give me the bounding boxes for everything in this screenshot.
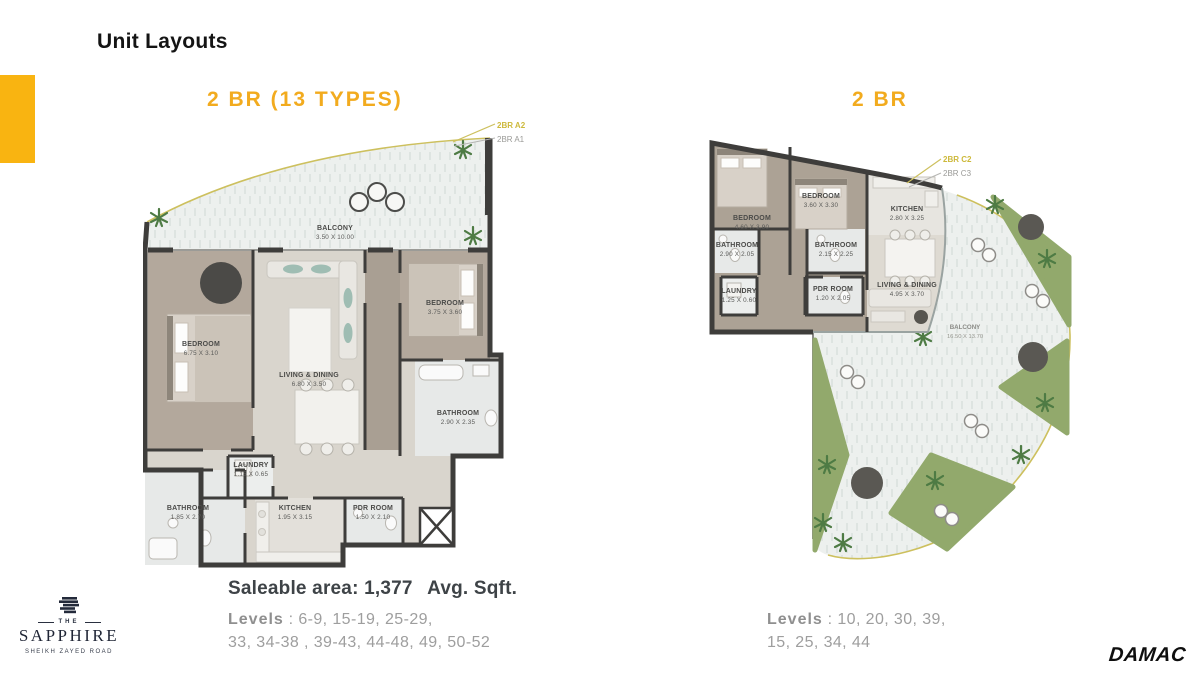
service-shaft bbox=[420, 508, 453, 545]
rule-left bbox=[38, 622, 54, 623]
room-label-pdr: PDR ROOM bbox=[353, 505, 393, 512]
levels-left-line1: : 6-9, 15-19, 25-29, bbox=[289, 611, 433, 628]
room-dims-bathroom2: 2.15 X 2.25 bbox=[819, 251, 854, 258]
room-label-bedroom1: BEDROOM bbox=[182, 341, 220, 348]
rule-right bbox=[85, 622, 101, 623]
room-label-bedroom2: BEDROOM bbox=[802, 193, 840, 200]
room-dims-balcony: 3.50 X 10.00 bbox=[316, 234, 354, 241]
accent-bar bbox=[0, 75, 35, 163]
floor-plan-left: BALCONY 3.50 X 10.00 BEDROOM 6.75 X 3.10… bbox=[143, 118, 538, 568]
room-label-laundry: LAUNDRY bbox=[721, 288, 756, 295]
room-dims-kitchen: 1.95 X 3.15 bbox=[278, 514, 313, 521]
room-dims-bedroom2: 3.75 X 3.60 bbox=[428, 309, 463, 316]
floor-plan-right: BEDROOM 4.60 X 3.90 BEDROOM 3.60 X 3.30 … bbox=[695, 125, 1080, 570]
room-label-balcony: BALCONY bbox=[950, 324, 981, 331]
corridor-floor bbox=[365, 250, 400, 450]
room-dims-bathroom1: 2.90 X 2.35 bbox=[441, 419, 476, 426]
levels-right: Levels : 10, 20, 30, 39, 15, 25, 34, 44 bbox=[767, 608, 1047, 654]
levels-right-line1: : 10, 20, 30, 39, bbox=[828, 611, 946, 628]
sapphire-stack-icon bbox=[16, 597, 122, 615]
room-dims-laundry: 1.15 X 0.65 bbox=[234, 471, 269, 478]
unit-tag-primary: 2BR A2 bbox=[497, 121, 526, 130]
sapphire-logo: THE SAPPHIRE SHEIKH ZAYED ROAD bbox=[16, 597, 122, 655]
room-dims-bedroom1: 4.60 X 3.90 bbox=[735, 224, 770, 231]
saleable-area-line: Saleable area: 1,377 Avg. Sqft. bbox=[228, 578, 517, 600]
right-plan-heading: 2 BR bbox=[852, 88, 908, 112]
levels-left-label: Levels bbox=[228, 611, 284, 628]
unit-tag-primary: 2BR C2 bbox=[943, 155, 972, 164]
left-plan-heading: 2 BR (13 TYPES) bbox=[207, 88, 403, 112]
room-label-bathroom2: BATHROOM bbox=[815, 242, 857, 249]
room-label-bathroom2: BATHROOM bbox=[167, 505, 209, 512]
room-dims-laundry: 1.25 X 0.60 bbox=[722, 297, 757, 304]
levels-right-line2: 15, 25, 34, 44 bbox=[767, 634, 870, 651]
room-dims-kitchen: 2.80 X 3.25 bbox=[890, 215, 925, 222]
room-label-kitchen: KITCHEN bbox=[279, 505, 312, 512]
sapphire-the: THE bbox=[59, 619, 80, 625]
saleable-area-unit: Avg. Sqft. bbox=[427, 578, 517, 599]
bedroom1-furniture bbox=[717, 149, 767, 207]
room-dims-pdr: 1.20 X 2.05 bbox=[816, 295, 851, 302]
room-label-balcony: BALCONY bbox=[317, 225, 353, 232]
room-dims-bedroom1: 6.75 X 3.10 bbox=[184, 350, 219, 357]
room-dims-living: 6.80 X 3.50 bbox=[292, 381, 327, 388]
room-label-laundry: LAUNDRY bbox=[233, 462, 268, 469]
levels-left: Levels : 6-9, 15-19, 25-29, 33, 34-38 , … bbox=[228, 608, 538, 654]
dining-set bbox=[885, 230, 935, 286]
saleable-area-label: Saleable area: bbox=[228, 578, 359, 599]
room-label-kitchen: KITCHEN bbox=[891, 206, 924, 213]
sapphire-the-row: THE bbox=[16, 619, 122, 625]
room-dims-living: 4.95 X 3.70 bbox=[890, 291, 925, 298]
sapphire-name: SAPPHIRE bbox=[16, 626, 122, 646]
unit-tag-secondary: 2BR C3 bbox=[943, 169, 972, 178]
sapphire-tagline: SHEIKH ZAYED ROAD bbox=[16, 649, 122, 655]
room-label-living: LIVING & DINING bbox=[279, 372, 339, 379]
room-label-bathroom1: BATHROOM bbox=[437, 410, 479, 417]
room-dims-bathroom1: 2.90 X 2.05 bbox=[720, 251, 755, 258]
room-dims-pdr: 1.50 X 2.10 bbox=[356, 514, 391, 521]
unit-tag-secondary: 2BR A1 bbox=[497, 135, 525, 144]
room-label-pdr: PDR ROOM bbox=[813, 286, 853, 293]
room-dims-bathroom2: 1.85 X 2.70 bbox=[171, 514, 206, 521]
saleable-area-value: 1,377 bbox=[364, 578, 413, 599]
page-title: Unit Layouts bbox=[97, 30, 228, 54]
room-label-bedroom1: BEDROOM bbox=[733, 215, 771, 222]
room-label-bedroom2: BEDROOM bbox=[426, 300, 464, 307]
levels-right-label: Levels bbox=[767, 611, 823, 628]
room-dims-bedroom2: 3.60 X 3.30 bbox=[804, 202, 839, 209]
room-dims-balcony: 16.50 X 13.70 bbox=[947, 334, 983, 340]
damac-logo: DAMAC bbox=[1108, 644, 1187, 667]
room-label-living: LIVING & DINING bbox=[877, 282, 937, 289]
room-label-bathroom1: BATHROOM bbox=[716, 242, 758, 249]
levels-left-line2: 33, 34-38 , 39-43, 44-48, 49, 50-52 bbox=[228, 634, 490, 651]
